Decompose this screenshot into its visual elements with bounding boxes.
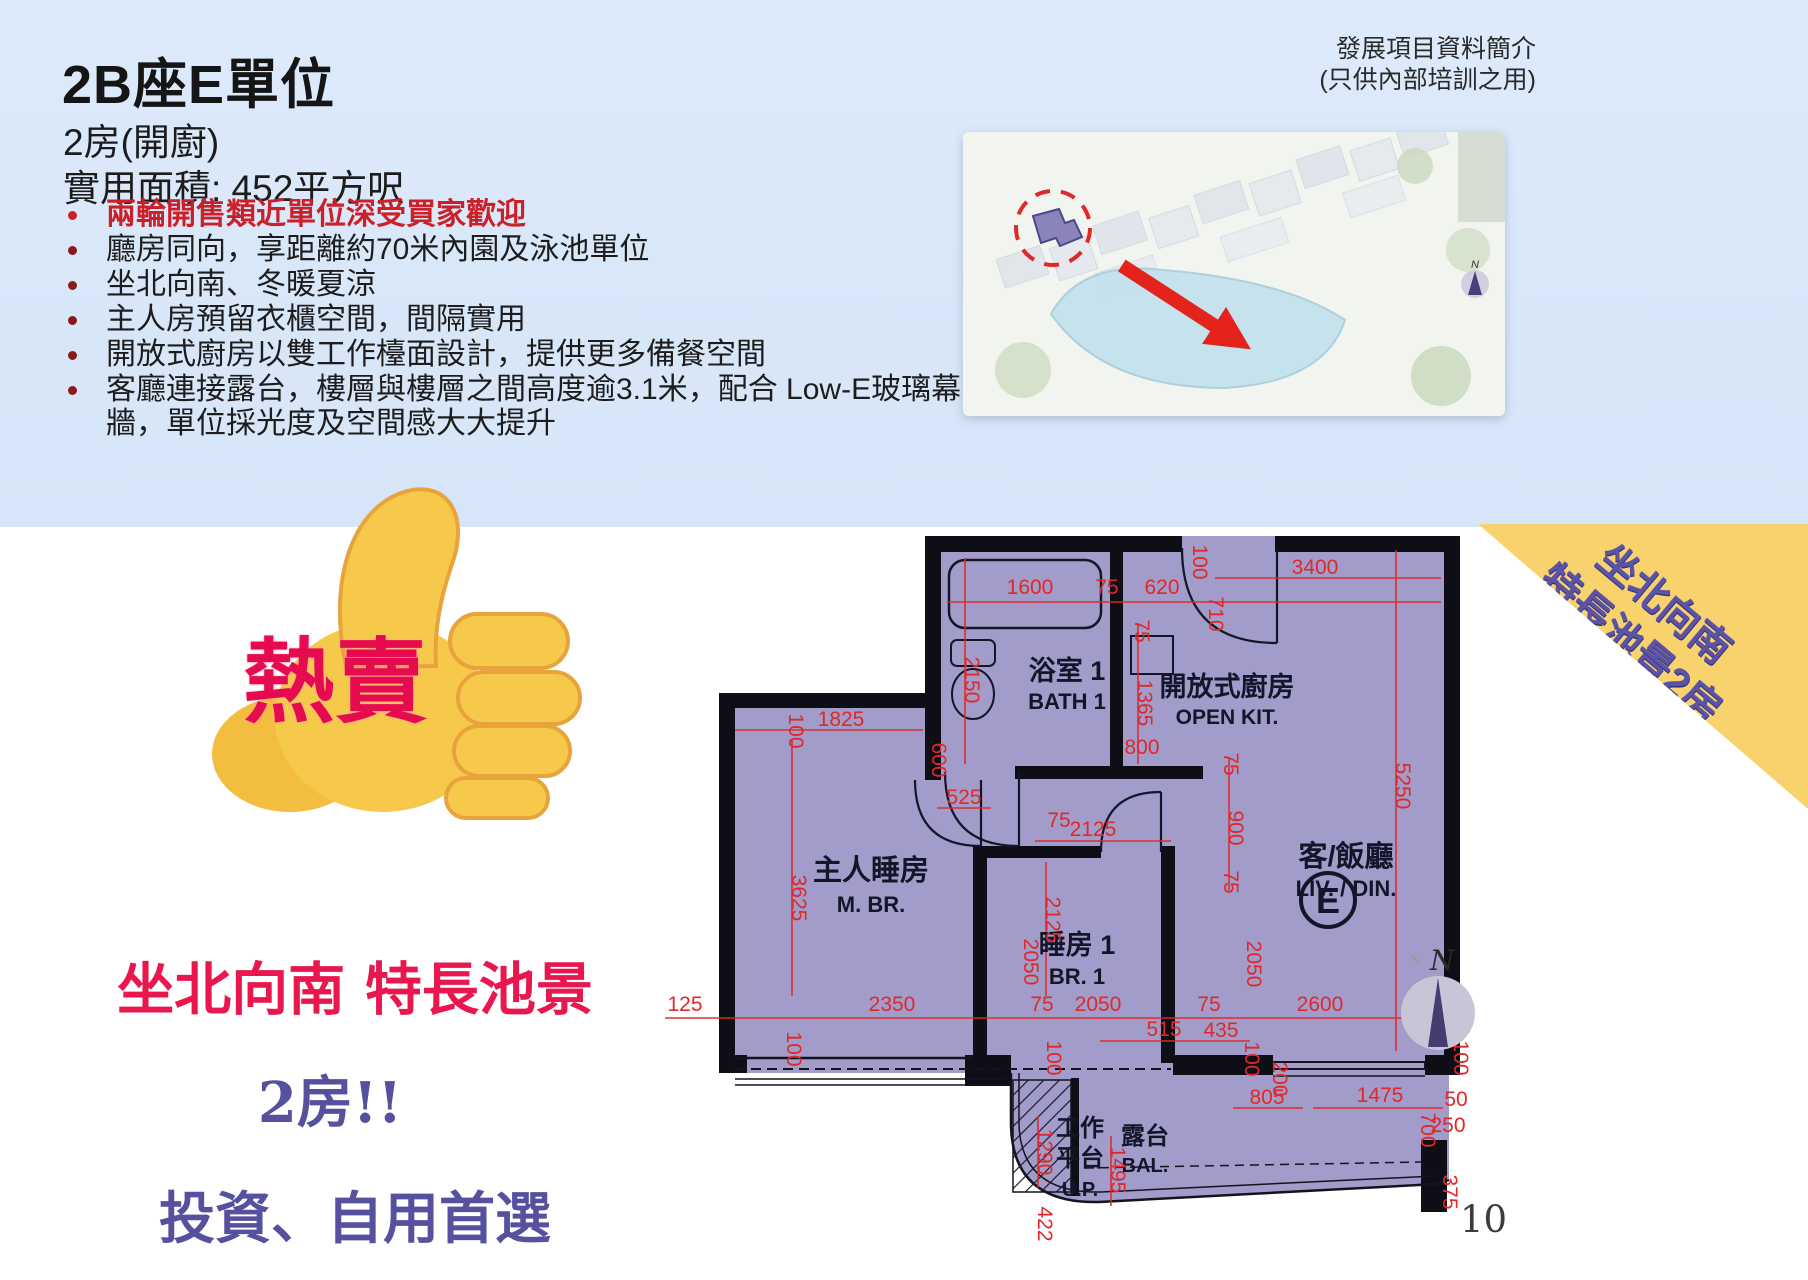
room-label: 主人睡房 — [813, 854, 929, 887]
dimension-label: 1290 — [1033, 1129, 1056, 1176]
dimension-label: 75 — [1030, 993, 1053, 1016]
dimension-label: 375 — [1438, 1174, 1461, 1209]
dimension-label: 2125 — [1070, 818, 1117, 841]
dimension-label: 600 — [927, 742, 950, 777]
dimension-label: 3400 — [1292, 556, 1339, 579]
room-label: 工作 — [1056, 1115, 1104, 1142]
dimension-label: 800 — [1124, 736, 1159, 759]
promo-orientation-text: 坐北向南 特長池景 — [80, 944, 630, 1026]
room-label: 開放式廚房 — [1160, 671, 1295, 702]
room-label: M. BR. — [837, 892, 905, 917]
dimension-label: 75 — [1197, 993, 1220, 1016]
internal-training-note: 發展項目資料簡介 (只供內部培訓之用) — [1319, 34, 1536, 96]
dimension-label: 1365 — [1133, 680, 1156, 727]
floor-plan: E 浴室 1BATH 1開放式廚房OPEN KIT.客/飯廳LIV. / DIN… — [615, 528, 1475, 1280]
dimension-label: 1475 — [1357, 1084, 1404, 1107]
hot-sale-stamp: 熱賣 — [243, 608, 427, 741]
room-label: U.P. — [1062, 1179, 1098, 1201]
dimension-label: 100 — [782, 1031, 805, 1066]
site-map-image: N — [963, 132, 1505, 416]
svg-text:N: N — [1471, 259, 1479, 271]
dimension-label: 5250 — [1391, 763, 1414, 810]
promo-rooms-text: 2房!! — [120, 1058, 540, 1139]
dimension-label: 2050 — [1242, 941, 1265, 988]
dimension-label: 2600 — [1297, 993, 1344, 1016]
dimension-label: 75 — [1095, 576, 1118, 599]
dimension-label: 525 — [946, 786, 981, 809]
selling-points-list: 兩輪開售類近單位深受買家歡迎 廳房同向，享距離約70米內園及泳池單位 坐北向南、… — [60, 198, 970, 442]
compass-icon: N — [1390, 938, 1490, 1063]
dimension-label: 100 — [784, 713, 807, 748]
dimension-label: 125 — [667, 993, 702, 1016]
room-label: BATH 1 — [1028, 689, 1106, 714]
list-item: 開放式廚房以雙工作檯面設計，提供更多備餐空間 — [60, 338, 970, 372]
dimension-label: 620 — [1144, 576, 1179, 599]
dimension-label: 3625 — [787, 875, 810, 922]
dimension-label: 250 — [1430, 1114, 1465, 1137]
dimension-label: 2050 — [1019, 939, 1042, 986]
room-label: LIV. / DIN. — [1296, 876, 1397, 901]
room-label: 平台 — [1056, 1144, 1104, 1172]
dimension-label: 900 — [1224, 810, 1247, 845]
room-label: BR. 1 — [1049, 964, 1105, 989]
dimension-label: 75 — [1219, 870, 1242, 893]
note-line: (只供內部培訓之用) — [1319, 65, 1536, 96]
dimension-label: 75 — [1219, 752, 1242, 775]
list-item: 廳房同向，享距離約70米內園及泳池單位 — [60, 233, 970, 267]
dimension-label: 2125 — [1041, 897, 1064, 944]
dimension-label: 435 — [1203, 1019, 1238, 1042]
note-line: 發展項目資料簡介 — [1319, 34, 1536, 65]
page-number: 10 — [1460, 1198, 1507, 1241]
corner-banner: 坐北向南 特長池景2房 — [1478, 524, 1808, 824]
dimension-label: 50 — [1444, 1088, 1467, 1111]
floor-plan-drawing: E 浴室 1BATH 1開放式廚房OPEN KIT.客/飯廳LIV. / DIN… — [615, 528, 1475, 1280]
dimension-label: 2050 — [1075, 993, 1122, 1016]
svg-text:N: N — [1429, 944, 1456, 977]
room-label: OPEN KIT. — [1176, 706, 1279, 729]
list-item: 兩輪開售類近單位深受買家歡迎 — [60, 198, 970, 232]
site-map-graphic: N — [963, 132, 1505, 416]
dimension-label: 75 — [1047, 809, 1070, 832]
slide: 2B座E單位 2房(開廚) 實用面積: 452平方呎 兩輪開售類近單位深受買家歡… — [0, 0, 1808, 1280]
dimension-label: 100 — [1240, 1041, 1263, 1076]
room-label: 浴室 1 — [1029, 655, 1106, 686]
dimension-label: 1825 — [818, 708, 865, 731]
list-item: 客廳連接露台，樓層與樓層之間高度逾3.1米，配合 Low-E玻璃幕牆，單位採光度… — [60, 373, 970, 441]
dimension-label: 515 — [1146, 1018, 1181, 1041]
dimension-label: 1600 — [1007, 576, 1054, 599]
dimension-label: 2150 — [960, 657, 983, 704]
page-title: 2B座E單位 — [62, 40, 335, 119]
dimension-label: 100 — [1042, 1040, 1065, 1075]
list-item: 主人房預留衣櫃空間，間隔實用 — [60, 303, 970, 337]
promo-investment-text: 投資、自用首選 — [80, 1174, 630, 1255]
dimension-label: 805 — [1249, 1086, 1284, 1109]
dimension-label: 1495 — [1106, 1147, 1129, 1194]
dimension-label: 75 — [1130, 619, 1153, 642]
banner-text: 坐北向南 特長池景2房 — [1529, 513, 1766, 736]
dimension-label: 422 — [1033, 1206, 1056, 1241]
list-item: 坐北向南、冬暖夏涼 — [60, 268, 970, 302]
dimension-label: 100 — [1188, 544, 1211, 579]
dimension-label: 2350 — [869, 993, 916, 1016]
dimension-label: 710 — [1204, 596, 1227, 631]
room-label: 客/飯廳 — [1298, 839, 1393, 873]
